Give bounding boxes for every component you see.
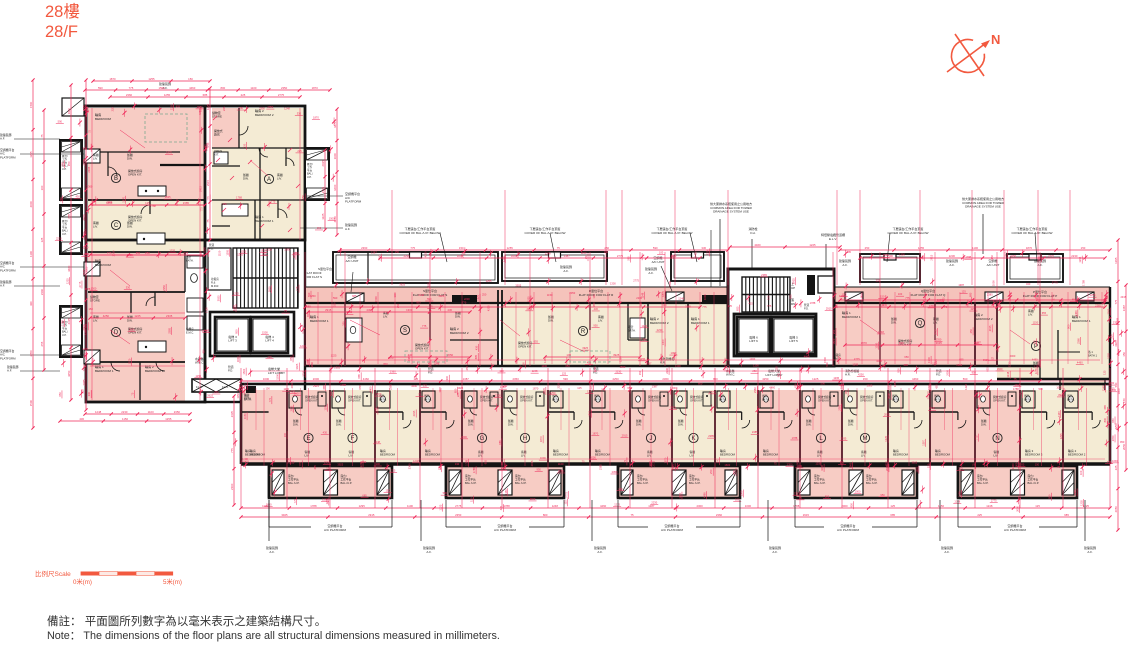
svg-text:1150: 1150 — [547, 293, 553, 297]
svg-text:2915: 2915 — [530, 460, 534, 466]
svg-text:3925: 3925 — [792, 278, 796, 284]
svg-text:775: 775 — [422, 324, 427, 328]
svg-text:225: 225 — [391, 469, 396, 473]
svg-text:1100: 1100 — [324, 404, 328, 410]
svg-text:A/C PLATFORM: A/C PLATFORM — [837, 528, 859, 532]
svg-text:露台/: 露台/ — [1028, 474, 1034, 478]
svg-text:950: 950 — [592, 302, 596, 307]
svg-text:1600: 1600 — [540, 456, 546, 460]
svg-text:1870: 1870 — [1026, 246, 1033, 250]
svg-text:OPEN KIT.: OPEN KIT. — [305, 399, 318, 403]
svg-text:BATH.: BATH. — [244, 397, 252, 401]
svg-text:1000: 1000 — [820, 464, 824, 470]
svg-text:685: 685 — [203, 93, 208, 97]
svg-text:BAL./U.P.: BAL./U.P. — [465, 481, 477, 485]
svg-text:250: 250 — [584, 254, 588, 259]
svg-text:800: 800 — [1103, 417, 1107, 422]
svg-text:775: 775 — [974, 435, 978, 440]
svg-text:250: 250 — [503, 384, 508, 388]
svg-text:3925: 3925 — [911, 461, 917, 465]
svg-text:BEDROOM: BEDROOM — [893, 453, 909, 457]
svg-text:1500: 1500 — [158, 86, 165, 90]
svg-text:150: 150 — [1122, 352, 1126, 357]
svg-text:BEDROOM 1: BEDROOM 1 — [255, 219, 274, 223]
svg-text:150: 150 — [522, 362, 526, 367]
svg-text:950: 950 — [896, 368, 900, 373]
svg-text:浴室: 浴室 — [1067, 394, 1073, 398]
svg-text:2350: 2350 — [324, 461, 330, 465]
svg-text:OPEN KIT.: OPEN KIT. — [520, 399, 533, 403]
svg-text:1225: 1225 — [438, 504, 442, 510]
svg-text:125: 125 — [40, 237, 44, 242]
svg-text:3935: 3935 — [887, 393, 891, 399]
svg-text:DRAINAGE SYSTEM USE: DRAINAGE SYSTEM USE — [965, 205, 1001, 209]
svg-text:650: 650 — [58, 392, 62, 397]
svg-text:1870: 1870 — [663, 457, 667, 463]
svg-text:LIV.: LIV. — [383, 315, 388, 319]
svg-text:浴室: 浴室 — [186, 255, 192, 259]
svg-text:2915: 2915 — [590, 384, 594, 390]
svg-text:1150: 1150 — [199, 106, 203, 112]
svg-text:685: 685 — [890, 513, 895, 517]
svg-text:150: 150 — [459, 246, 464, 250]
svg-text:1225: 1225 — [614, 502, 620, 506]
svg-text:1100: 1100 — [283, 387, 289, 391]
svg-text:685: 685 — [362, 494, 367, 498]
svg-text:590: 590 — [1035, 296, 1039, 301]
svg-text:225: 225 — [977, 513, 982, 517]
svg-text:1295: 1295 — [374, 407, 378, 413]
svg-text:FOR FLAT S: FOR FLAT S — [305, 275, 322, 279]
svg-text:430: 430 — [202, 349, 206, 354]
svg-text:BEDROOM: BEDROOM — [95, 117, 111, 121]
svg-text:225: 225 — [183, 251, 188, 255]
svg-text:2335: 2335 — [67, 318, 71, 325]
svg-text:LIFT 5: LIFT 5 — [789, 339, 798, 343]
svg-text:2230: 2230 — [121, 410, 128, 414]
svg-text:250: 250 — [969, 329, 973, 334]
svg-text:1225: 1225 — [884, 435, 888, 441]
svg-text:電機房: 電機房 — [186, 327, 194, 331]
svg-text:2230: 2230 — [949, 254, 956, 258]
svg-text:4250: 4250 — [103, 314, 110, 318]
svg-text:4460: 4460 — [189, 86, 196, 90]
svg-text:1100: 1100 — [148, 410, 154, 414]
svg-text:U.P.: U.P. — [62, 334, 67, 337]
svg-text:800: 800 — [795, 460, 799, 465]
svg-text:A/C PLATFORM: A/C PLATFORM — [661, 528, 683, 532]
svg-text:685: 685 — [85, 252, 90, 256]
svg-text:250: 250 — [832, 329, 836, 334]
svg-text:2360: 2360 — [662, 377, 669, 381]
svg-text:1295: 1295 — [874, 342, 878, 348]
svg-text:590: 590 — [563, 377, 568, 381]
svg-text:1100: 1100 — [250, 86, 256, 90]
svg-text:775: 775 — [293, 498, 297, 503]
svg-text:225: 225 — [297, 149, 302, 153]
svg-text:1600: 1600 — [267, 286, 271, 292]
svg-text:LIV.: LIV. — [277, 177, 282, 181]
svg-text:2915: 2915 — [313, 384, 319, 388]
svg-text:BEDROOM 2: BEDROOM 2 — [974, 317, 993, 321]
svg-text:1150: 1150 — [205, 307, 209, 313]
svg-text:430: 430 — [79, 417, 84, 421]
svg-text:655: 655 — [358, 385, 362, 390]
svg-text:330: 330 — [393, 293, 397, 298]
svg-text:A: A — [267, 177, 271, 183]
svg-text:100: 100 — [511, 254, 516, 258]
svg-text:STORE: STORE — [212, 115, 222, 119]
svg-text:廚房: 廚房 — [214, 132, 220, 137]
svg-text:1870: 1870 — [388, 356, 394, 360]
svg-text:DIN.: DIN. — [293, 423, 299, 427]
svg-text:1255: 1255 — [164, 93, 171, 97]
svg-text:430: 430 — [447, 308, 452, 312]
svg-text:2360: 2360 — [1076, 338, 1080, 344]
svg-text:650: 650 — [301, 195, 305, 200]
svg-text:OPEN KIT.: OPEN KIT. — [818, 399, 831, 403]
svg-text:75: 75 — [40, 134, 44, 138]
svg-text:1788: 1788 — [150, 204, 156, 208]
svg-text:LIV.: LIV. — [1028, 313, 1033, 317]
svg-text:1255: 1255 — [169, 249, 175, 253]
svg-text:4250: 4250 — [1114, 423, 1118, 430]
svg-text:1870: 1870 — [661, 291, 665, 297]
svg-text:A/C PLATFORM: A/C PLATFORM — [1004, 528, 1026, 532]
svg-text:LIV.: LIV. — [93, 319, 98, 323]
svg-text:775: 775 — [129, 86, 134, 90]
svg-text:2050: 2050 — [945, 369, 949, 375]
svg-text:LIV.: LIV. — [93, 157, 98, 161]
svg-text:4250: 4250 — [310, 294, 316, 298]
svg-text:2230: 2230 — [706, 249, 710, 255]
svg-text:2360: 2360 — [407, 463, 411, 469]
svg-text:330: 330 — [297, 112, 302, 116]
svg-text:露台/: 露台/ — [866, 474, 872, 478]
svg-text:2230: 2230 — [404, 254, 411, 258]
svg-text:1387: 1387 — [975, 340, 981, 344]
svg-text:2050: 2050 — [1106, 308, 1110, 314]
svg-text:BEDROOM: BEDROOM — [425, 453, 441, 457]
svg-text:655: 655 — [1042, 311, 1047, 315]
svg-text:露台/: 露台/ — [515, 474, 521, 478]
svg-text:工作平台: 工作平台 — [637, 478, 648, 482]
svg-text:2350: 2350 — [259, 107, 265, 111]
svg-text:1870: 1870 — [533, 386, 539, 390]
svg-text:1600: 1600 — [867, 383, 873, 387]
svg-text:1500: 1500 — [262, 331, 268, 335]
svg-text:2360: 2360 — [126, 93, 133, 97]
svg-text:2350: 2350 — [203, 247, 207, 253]
svg-text:P.D.: P.D. — [936, 373, 941, 377]
svg-text:950: 950 — [1109, 334, 1113, 339]
svg-text:125: 125 — [1035, 504, 1040, 508]
svg-text:1255: 1255 — [1090, 293, 1096, 297]
svg-text:1100: 1100 — [407, 504, 413, 508]
svg-text:2915: 2915 — [988, 325, 992, 331]
svg-text:BAL./U.P.: BAL./U.P. — [637, 481, 649, 485]
svg-text:2775: 2775 — [633, 278, 639, 282]
svg-text:1255: 1255 — [83, 329, 87, 335]
svg-text:2000: 2000 — [285, 248, 291, 252]
svg-text:2350: 2350 — [174, 410, 181, 414]
svg-text:2775: 2775 — [991, 499, 997, 503]
svg-text:A.F.: A.F. — [563, 269, 568, 273]
svg-text:H.R.: H.R. — [845, 373, 851, 377]
svg-text:R: R — [581, 329, 586, 335]
svg-text:1150: 1150 — [243, 413, 247, 419]
svg-text:125: 125 — [835, 303, 839, 308]
svg-text:100: 100 — [659, 251, 664, 255]
svg-text:BEDROOM: BEDROOM — [763, 453, 779, 457]
svg-text:BATH.: BATH. — [552, 398, 560, 402]
svg-text:2915: 2915 — [321, 160, 325, 167]
svg-text:A.F.: A.F. — [597, 550, 602, 554]
svg-text:2385: 2385 — [168, 327, 172, 333]
svg-text:1225: 1225 — [65, 278, 69, 284]
svg-text:1870: 1870 — [166, 150, 172, 154]
svg-text:1225: 1225 — [964, 384, 968, 390]
svg-text:浴室: 浴室 — [762, 394, 768, 398]
svg-text:75: 75 — [557, 246, 561, 250]
svg-text:775: 775 — [107, 251, 112, 255]
svg-text:1788: 1788 — [810, 301, 816, 305]
svg-text:225: 225 — [241, 93, 246, 97]
svg-text:開放式廚房: 開放式廚房 — [690, 395, 704, 399]
svg-text:工作平台: 工作平台 — [515, 478, 526, 482]
svg-text:4250: 4250 — [424, 251, 428, 257]
svg-text:2360: 2360 — [361, 246, 368, 250]
svg-text:225: 225 — [111, 106, 115, 111]
svg-text:150: 150 — [880, 295, 885, 299]
svg-text:1300: 1300 — [91, 286, 97, 290]
svg-text:1150: 1150 — [305, 359, 309, 365]
svg-text:1870: 1870 — [312, 86, 319, 90]
svg-text:工作平台: 工作平台 — [977, 478, 988, 482]
svg-text:PLATFORM: PLATFORM — [345, 200, 362, 204]
svg-text:430: 430 — [639, 301, 643, 306]
svg-text:3925: 3925 — [295, 363, 299, 369]
svg-text:OPEN KIT.: OPEN KIT. — [415, 347, 429, 351]
svg-text:1600: 1600 — [263, 377, 270, 381]
svg-text:BATH.: BATH. — [594, 398, 602, 402]
svg-text:KIT.: KIT. — [214, 153, 219, 157]
svg-text:2000: 2000 — [1108, 381, 1114, 385]
svg-text:2230: 2230 — [557, 382, 561, 388]
svg-text:2775: 2775 — [83, 352, 87, 358]
svg-text:1387: 1387 — [564, 254, 571, 258]
svg-text:590: 590 — [642, 337, 647, 341]
svg-text:1500: 1500 — [29, 101, 33, 108]
svg-text:775: 775 — [1114, 299, 1118, 304]
svg-text:28/F: 28/F — [45, 23, 78, 41]
svg-text:2000: 2000 — [460, 251, 464, 257]
svg-text:2230: 2230 — [651, 500, 657, 504]
svg-text:3935: 3935 — [841, 437, 847, 441]
svg-text:1150: 1150 — [1112, 459, 1118, 463]
svg-text:1000: 1000 — [992, 280, 996, 286]
svg-text:150: 150 — [863, 377, 868, 381]
svg-text:1255: 1255 — [233, 292, 239, 296]
svg-text:浴室: 浴室 — [934, 394, 940, 398]
svg-text:電錶房: 電錶房 — [833, 353, 841, 357]
svg-text:950: 950 — [67, 161, 71, 166]
svg-text:浴室: 浴室 — [424, 394, 430, 398]
svg-text:655: 655 — [534, 339, 539, 343]
svg-text:3925: 3925 — [438, 294, 444, 298]
svg-text:浴室: 浴室 — [628, 325, 634, 329]
svg-text:BATH.: BATH. — [379, 398, 387, 402]
svg-text:590: 590 — [821, 381, 826, 385]
svg-text:2050: 2050 — [129, 327, 135, 331]
svg-text:1150: 1150 — [938, 504, 944, 508]
svg-text:1300: 1300 — [406, 308, 413, 312]
svg-text:DIN.: DIN. — [455, 315, 461, 319]
svg-text:425: 425 — [728, 304, 733, 308]
svg-text:垃圾房: 垃圾房 — [211, 277, 219, 281]
svg-text:OPEN KIT.: OPEN KIT. — [128, 219, 142, 223]
svg-text:BEDROOM 1: BEDROOM 1 — [95, 369, 114, 373]
svg-text:1500: 1500 — [276, 373, 280, 379]
svg-text:2775: 2775 — [709, 390, 715, 394]
svg-text:A/C UNIT: A/C UNIT — [652, 260, 665, 264]
svg-text:4460: 4460 — [82, 214, 86, 221]
svg-text:1300: 1300 — [445, 375, 449, 381]
svg-text:150: 150 — [1032, 340, 1036, 345]
svg-text:2230: 2230 — [464, 297, 470, 301]
svg-text:3925: 3925 — [983, 358, 989, 362]
svg-text:1387: 1387 — [652, 384, 658, 388]
svg-text:150: 150 — [766, 295, 770, 300]
svg-text:4460: 4460 — [363, 377, 370, 381]
svg-text:2915: 2915 — [803, 513, 810, 517]
svg-text:590: 590 — [239, 106, 244, 110]
svg-text:1387: 1387 — [922, 439, 926, 445]
svg-text:2915: 2915 — [929, 254, 933, 260]
svg-text:3925: 3925 — [582, 346, 588, 350]
svg-text:U.P.: U.P. — [62, 168, 67, 171]
svg-text:BATH.: BATH. — [934, 398, 942, 402]
svg-text:DIN.: DIN. — [806, 423, 812, 427]
svg-text:DIN.: DIN. — [127, 157, 133, 161]
svg-text:950: 950 — [850, 503, 854, 508]
svg-text:250: 250 — [214, 390, 219, 394]
svg-text:800: 800 — [713, 377, 718, 381]
svg-text:685: 685 — [352, 294, 357, 298]
svg-text:950: 950 — [1047, 494, 1051, 499]
svg-text:1150: 1150 — [196, 374, 202, 378]
svg-text:590: 590 — [1114, 382, 1118, 387]
svg-text:2000: 2000 — [1010, 354, 1016, 358]
svg-text:430: 430 — [662, 303, 667, 307]
svg-text:3935: 3935 — [883, 253, 889, 257]
svg-text:1255: 1255 — [1079, 500, 1083, 506]
svg-text:2360: 2360 — [956, 363, 962, 367]
svg-text:BAL./U.P.: BAL./U.P. — [341, 481, 353, 485]
svg-text:1255: 1255 — [148, 77, 155, 81]
svg-text:1295: 1295 — [1114, 257, 1118, 264]
svg-text:Note： The dimensions of the f: Note： The dimensions of the floor plans … — [47, 630, 500, 642]
svg-text:2230: 2230 — [1071, 254, 1078, 258]
svg-text:2000: 2000 — [290, 382, 294, 388]
svg-text:100: 100 — [265, 387, 270, 391]
svg-text:1255: 1255 — [918, 246, 925, 250]
svg-text:655: 655 — [306, 312, 310, 317]
svg-text:800: 800 — [732, 469, 736, 474]
svg-text:N: N — [991, 32, 1000, 47]
svg-text:2775: 2775 — [278, 93, 285, 97]
svg-text:1225: 1225 — [321, 213, 325, 220]
svg-text:2000: 2000 — [884, 412, 890, 416]
svg-text:100: 100 — [592, 294, 596, 299]
svg-text:LIFT 3: LIFT 3 — [228, 339, 237, 343]
svg-text:2335: 2335 — [87, 166, 91, 172]
svg-text:950: 950 — [1120, 440, 1125, 444]
svg-text:775: 775 — [268, 397, 272, 402]
svg-text:B: B — [114, 176, 118, 182]
svg-text:2385: 2385 — [183, 201, 190, 205]
svg-text:800: 800 — [825, 495, 830, 499]
svg-text:655: 655 — [176, 104, 181, 108]
svg-text:430: 430 — [1026, 282, 1031, 286]
svg-text:685: 685 — [847, 250, 852, 254]
svg-text:1600: 1600 — [832, 338, 836, 344]
svg-text:BEDROOM 2: BEDROOM 2 — [255, 113, 274, 117]
svg-text:3935: 3935 — [671, 464, 675, 470]
svg-text:2775: 2775 — [321, 186, 325, 193]
svg-text:655: 655 — [483, 459, 487, 464]
svg-text:DIN.: DIN. — [891, 321, 897, 325]
svg-text:比例尺Scale: 比例尺Scale — [35, 569, 71, 578]
svg-text:P.D.: P.D. — [209, 246, 214, 250]
svg-text:1788: 1788 — [503, 504, 510, 508]
svg-text:BEDROOM: BEDROOM — [935, 453, 951, 457]
svg-text:BATH.: BATH. — [762, 398, 770, 402]
svg-text:BATH.: BATH. — [186, 258, 194, 262]
svg-text:1255: 1255 — [165, 417, 172, 421]
svg-text:2000: 2000 — [697, 504, 704, 508]
svg-text:2360: 2360 — [390, 369, 396, 373]
svg-text:1225: 1225 — [331, 354, 337, 358]
svg-text:BAL./U.P.: BAL./U.P. — [1028, 481, 1040, 485]
svg-text:590: 590 — [899, 341, 904, 345]
svg-text:125: 125 — [890, 504, 895, 508]
svg-text:0米(m): 0米(m) — [73, 578, 92, 586]
svg-text:1387: 1387 — [438, 386, 442, 392]
svg-text:DIN.: DIN. — [127, 319, 133, 323]
svg-text:開放式廚房: 開放式廚房 — [860, 395, 874, 399]
svg-text:4460: 4460 — [1032, 357, 1038, 361]
svg-text:2230: 2230 — [302, 370, 306, 376]
svg-text:590: 590 — [627, 256, 631, 261]
svg-text:100: 100 — [844, 390, 848, 395]
svg-text:COVER OF BAL./U.P. BELOW: COVER OF BAL./U.P. BELOW — [1012, 231, 1053, 235]
svg-text:LIV.: LIV. — [93, 225, 98, 229]
svg-text:2230: 2230 — [56, 237, 62, 241]
svg-text:655: 655 — [736, 306, 740, 311]
svg-text:露台/: 露台/ — [637, 474, 643, 478]
svg-text:1600: 1600 — [678, 492, 682, 498]
svg-text:BAL./U.P.: BAL./U.P. — [689, 481, 701, 485]
svg-text:1870: 1870 — [539, 436, 543, 442]
svg-text:250: 250 — [958, 467, 963, 471]
svg-text:開放式廚房: 開放式廚房 — [520, 395, 534, 399]
svg-text:2915: 2915 — [206, 179, 210, 186]
svg-text:OPEN KIT.: OPEN KIT. — [648, 399, 661, 403]
svg-text:1150: 1150 — [642, 324, 648, 328]
svg-text:FLAT ROOF FOR FLAT R: FLAT ROOF FOR FLAT R — [579, 293, 614, 297]
svg-text:100: 100 — [618, 487, 623, 491]
